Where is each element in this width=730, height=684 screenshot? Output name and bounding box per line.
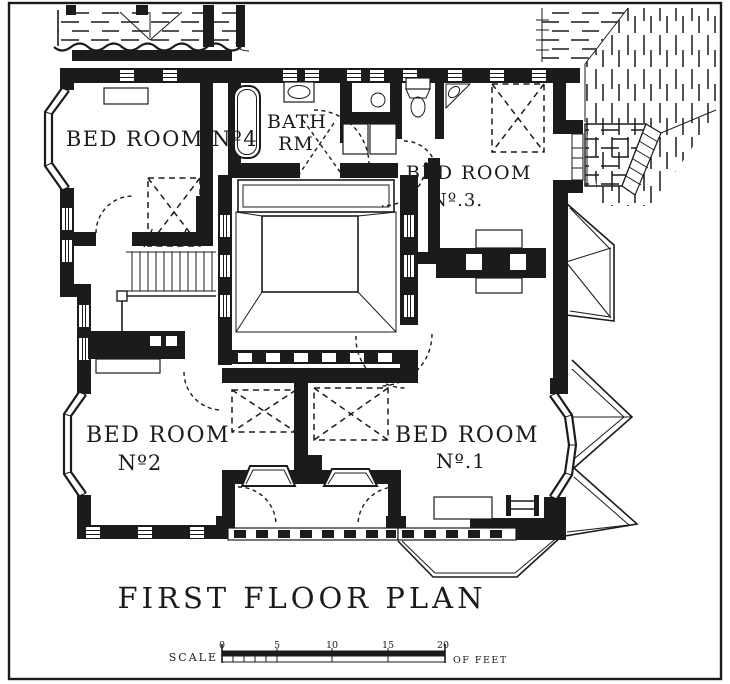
scale-tick-5: 5 <box>274 640 280 651</box>
floor-plan-drawing: BED ROOM Nº4 BATH RM BED ROOM Nº.3. BED … <box>0 0 730 684</box>
drawing-title: FIRST FLOOR PLAN <box>118 581 487 615</box>
scale-tick-0: 0 <box>219 640 225 651</box>
room-label-bathroom-line1: BATH <box>267 111 327 133</box>
bedroom1-south-windows <box>398 528 516 540</box>
window-seat-bedroom4 <box>104 88 148 104</box>
scale-tick-15: 15 <box>382 640 394 651</box>
window-seat-bedroom1 <box>434 497 492 519</box>
scale-tick-20: 20 <box>437 640 449 651</box>
bedroom3-bay-window <box>572 134 583 180</box>
scale-units-label: OF FEET <box>453 655 508 666</box>
room-label-bedroom3-line1: BED ROOM <box>406 162 532 184</box>
scale-tick-10: 10 <box>326 640 338 651</box>
room-label-bedroom3-line2: Nº.3. <box>431 190 483 211</box>
scale-label: SCALE <box>169 651 218 664</box>
room-label-bedroom1-line2: Nº.1 <box>436 449 486 473</box>
roof-top-left <box>54 5 249 61</box>
room-label-bedroom2-line2: Nº2 <box>118 451 163 475</box>
room-label-bedroom2-line1: BED ROOM <box>86 423 230 448</box>
room-label-bedroom4: BED ROOM Nº4 <box>66 127 258 151</box>
sink-symbol <box>284 82 314 102</box>
floor-plan-page: BED ROOM Nº4 BATH RM BED ROOM Nº.3. BED … <box>0 0 730 684</box>
room-label-bedroom1-line1: BED ROOM <box>395 423 539 448</box>
room-label-bathroom-line2: RM <box>278 133 314 155</box>
